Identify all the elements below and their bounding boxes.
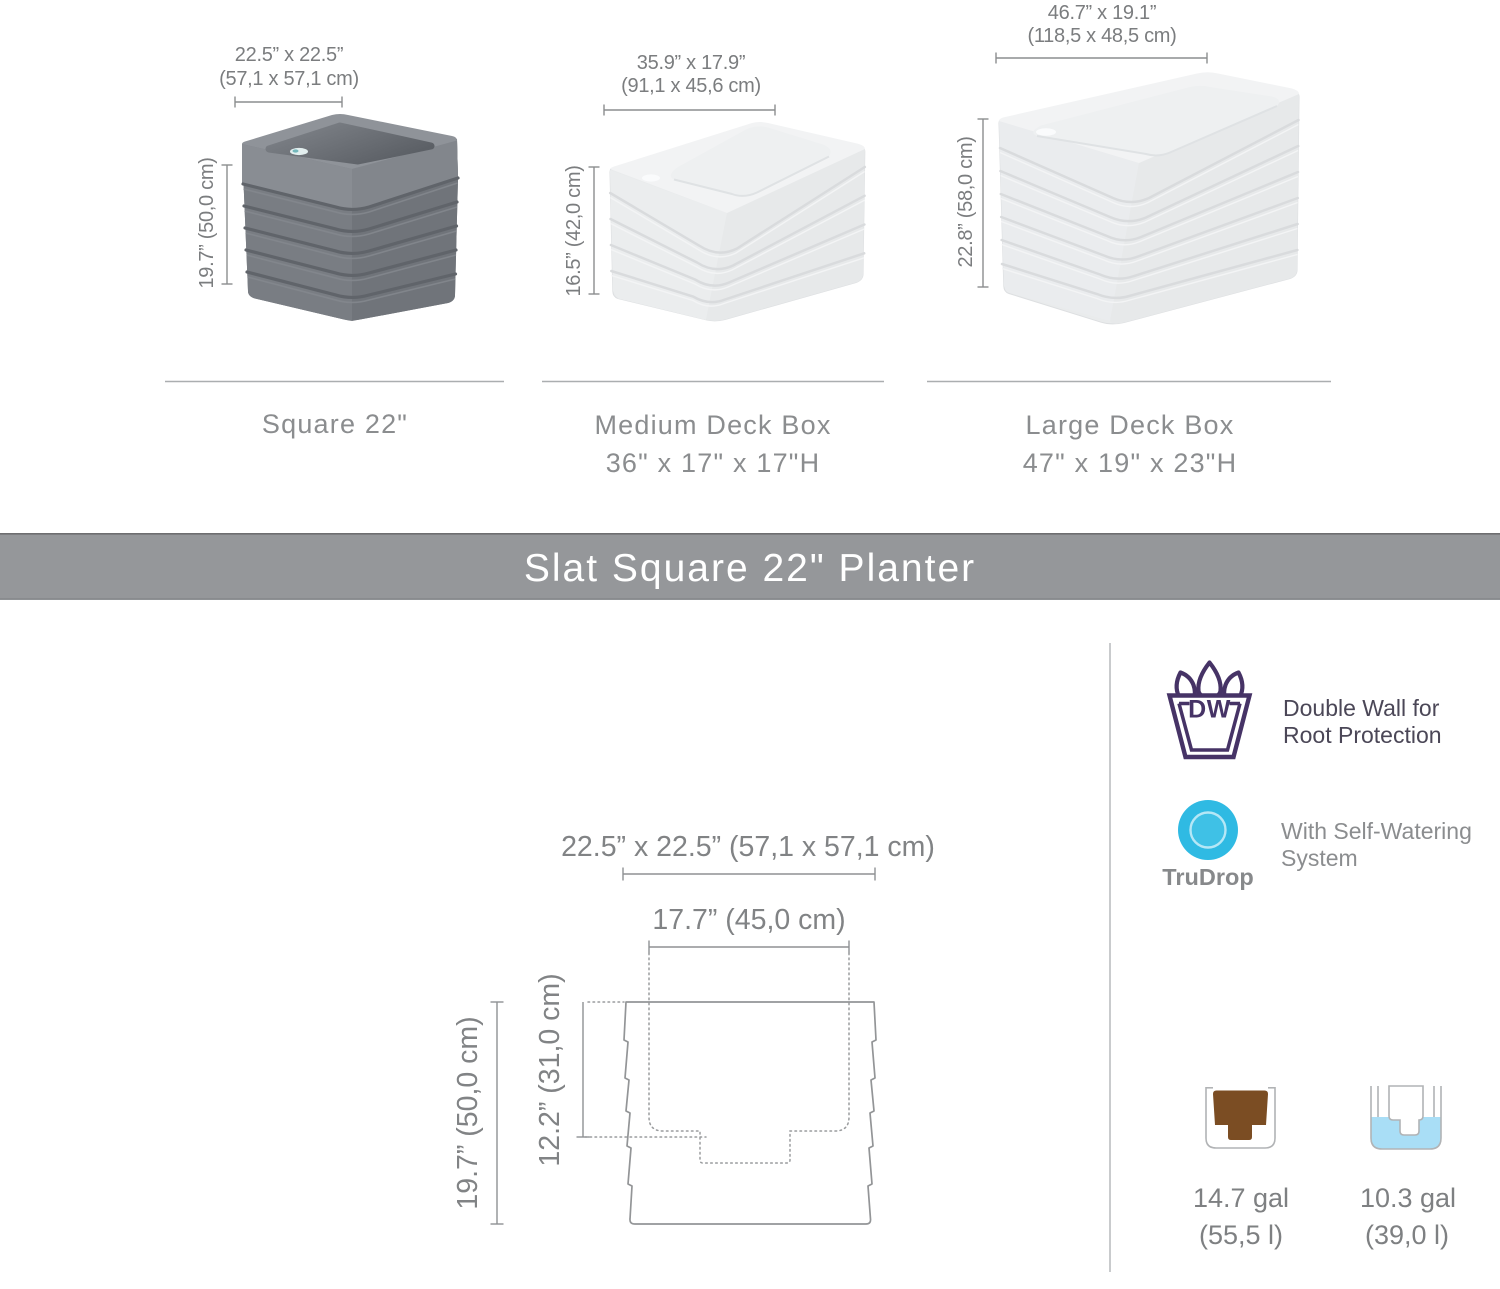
svg-text:10.3 gal: 10.3 gal <box>1360 1183 1456 1213</box>
svg-text:DW: DW <box>1188 696 1231 724</box>
svg-text:46.7” x 19.1”: 46.7” x 19.1” <box>1048 2 1156 24</box>
svg-text:(91,1 x 45,6 cm): (91,1 x 45,6 cm) <box>621 75 761 97</box>
svg-text:16.5” (42,0 cm): 16.5” (42,0 cm) <box>563 165 585 296</box>
svg-text:22.5” x 22.5”: 22.5” x 22.5” <box>235 44 343 66</box>
svg-text:TruDrop: TruDrop <box>1162 864 1253 890</box>
svg-text:(118,5 x 48,5 cm): (118,5 x 48,5 cm) <box>1027 25 1176 47</box>
svg-text:Double Wall for: Double Wall for <box>1283 695 1440 721</box>
svg-text:Square 22": Square 22" <box>262 409 408 439</box>
svg-text:Large Deck Box: Large Deck Box <box>1026 410 1235 440</box>
svg-text:36" x 17" x 17"H: 36" x 17" x 17"H <box>606 448 821 478</box>
svg-text:19.7” (50,0 cm): 19.7” (50,0 cm) <box>196 157 218 288</box>
svg-text:14.7 gal: 14.7 gal <box>1193 1183 1289 1213</box>
svg-text:(57,1 x 57,1 cm): (57,1 x 57,1 cm) <box>219 68 359 90</box>
svg-text:Slat Square 22" Planter: Slat Square 22" Planter <box>524 547 976 590</box>
svg-text:47" x 19" x 23"H: 47" x 19" x 23"H <box>1023 448 1238 478</box>
svg-text:With Self-Watering: With Self-Watering <box>1281 818 1472 844</box>
svg-text:22.8” (58,0 cm): 22.8” (58,0 cm) <box>955 136 977 267</box>
svg-text:19.7” (50,0 cm): 19.7” (50,0 cm) <box>452 1016 484 1209</box>
svg-text:22.5” x 22.5” (57,1 x 57,1 cm): 22.5” x 22.5” (57,1 x 57,1 cm) <box>561 831 935 863</box>
svg-text:35.9” x 17.9”: 35.9” x 17.9” <box>637 52 745 74</box>
svg-text:(55,5 l): (55,5 l) <box>1199 1220 1283 1250</box>
svg-text:Medium Deck Box: Medium Deck Box <box>594 410 831 440</box>
svg-text:17.7” (45,0 cm): 17.7” (45,0 cm) <box>652 904 845 936</box>
svg-text:(39,0 l): (39,0 l) <box>1365 1220 1449 1250</box>
svg-text:12.2” (31,0 cm): 12.2” (31,0 cm) <box>534 973 566 1166</box>
svg-text:Root Protection: Root Protection <box>1283 722 1442 748</box>
svg-text:System: System <box>1281 845 1358 871</box>
